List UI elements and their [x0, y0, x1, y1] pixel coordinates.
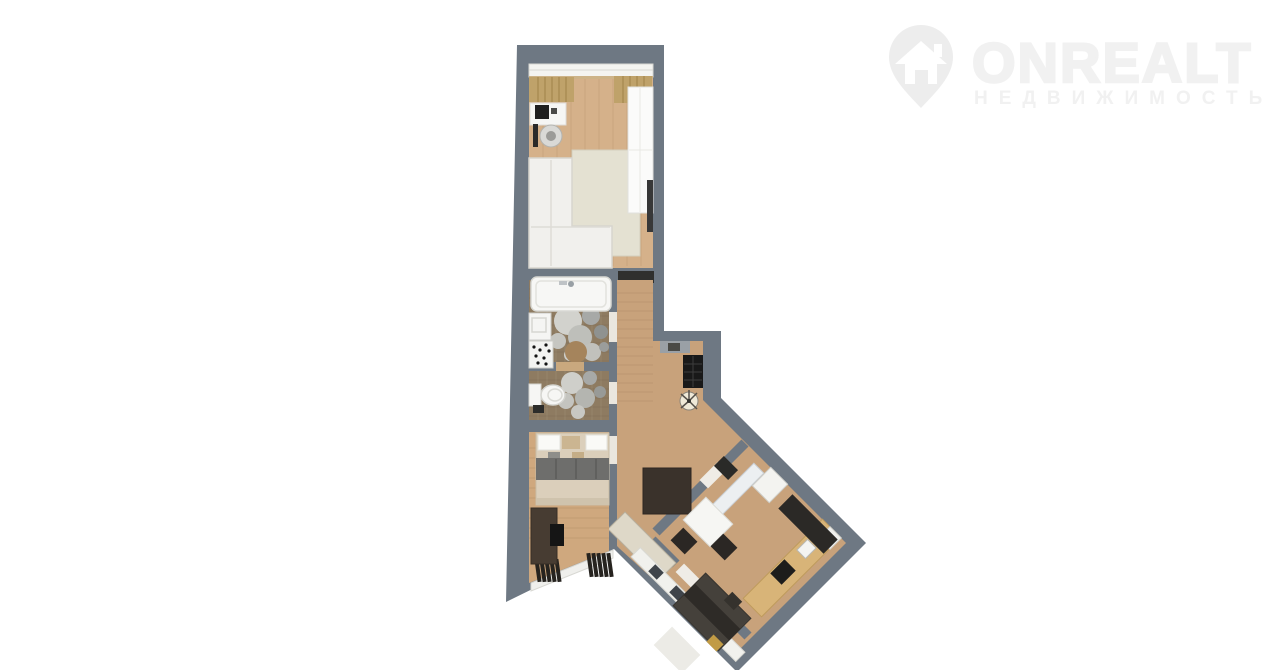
- watermark-logo: ONREALT НЕДВИЖИМОСТЬ: [0, 0, 1280, 670]
- logo-pin-icon: [889, 25, 953, 108]
- logo-brand-text: ONREALT: [972, 31, 1253, 94]
- logo-house-door: [915, 70, 928, 84]
- floor-plan-page: ONREALT НЕДВИЖИМОСТЬ: [0, 0, 1280, 670]
- logo-tagline-text: НЕДВИЖИМОСТЬ: [974, 88, 1273, 109]
